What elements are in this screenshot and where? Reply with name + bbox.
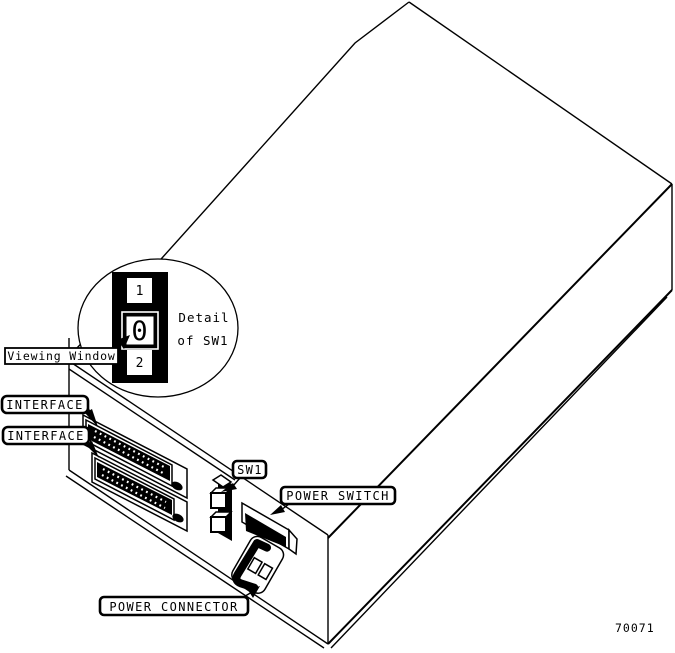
switch-position-bottom: 2 (136, 356, 144, 371)
interface-top-label-text: INTERFACE (6, 398, 84, 412)
detail-bubble: 1 0 2 Detail of SW1 (78, 259, 238, 397)
power-connector-label-text: POWER CONNECTOR (109, 600, 238, 614)
switch-position-top: 1 (136, 284, 144, 299)
detail-note-line2: of SW1 (177, 333, 228, 348)
callout-interface-bottom: INTERFACE (3, 427, 99, 458)
switch-position-middle: 0 (131, 316, 147, 347)
callout-sw1: SW1 (221, 461, 266, 492)
right-face-top-edge (328, 184, 672, 538)
sw1-actuator-lower (211, 517, 226, 532)
figure-number: 70071 (615, 621, 655, 635)
interface-bottom-label-text: INTERFACE (7, 429, 85, 443)
figure-page: 1 0 2 Detail of SW1 Viewing Window INTER… (0, 0, 675, 653)
sw1-label-text: SW1 (237, 463, 263, 477)
sw1-actuator-upper (211, 493, 226, 508)
top-face-right-edge (409, 2, 672, 184)
sw1-switch (211, 475, 232, 541)
viewing-window-label-text: Viewing Window (7, 349, 115, 363)
callout-power-connector: POWER CONNECTOR (100, 586, 260, 615)
callout-power-switch: POWER SWITCH (270, 487, 395, 515)
leader-arrowhead (270, 505, 285, 515)
right-bottom-rim-accent (331, 297, 667, 648)
right-bottom-rim (328, 290, 672, 644)
power-switch-label-text: POWER SWITCH (286, 489, 390, 503)
enclosure-rear-view-diagram: 1 0 2 Detail of SW1 Viewing Window INTER… (0, 0, 675, 653)
detail-note-line1: Detail (178, 310, 229, 325)
rocker-frame-end (289, 530, 297, 554)
